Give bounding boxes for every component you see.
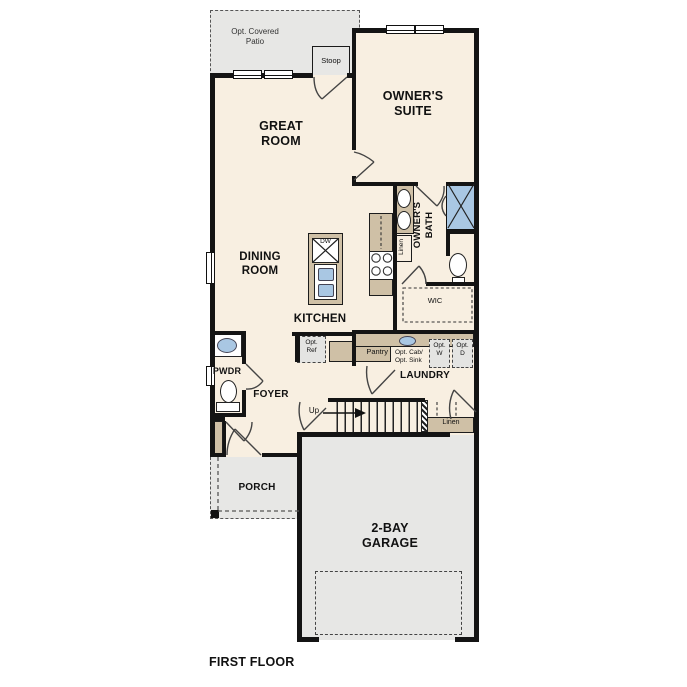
wall [446,182,479,186]
wall [297,432,450,437]
owners-suite-label: OWNER'S SUITE [373,89,453,120]
bath-toilet-bowl [449,253,467,277]
wall [292,73,313,78]
wall [352,28,356,150]
foyer-label: FOYER [247,389,295,401]
great-room-window-right [264,70,293,79]
staircase [330,402,421,432]
wall [297,435,302,642]
vanity-sink-bottom [397,211,411,230]
wall [210,331,246,335]
pwdr-toilet-tank [216,402,240,412]
cooktop [369,251,394,280]
pantry-label: Pantry [334,347,388,356]
vanity-sink-top [397,189,411,208]
wall [262,453,300,457]
wall [210,386,215,457]
garage-door-dashed-area [315,571,462,635]
wall [210,453,226,457]
wall [393,182,397,334]
stairs-linen-label: Linen [434,419,468,428]
porch-post [211,510,219,518]
laundry-opt-sink [399,336,416,346]
dining-room-window [206,252,215,284]
wall [223,421,226,454]
owners-bath-label: OWNER'S BATH [412,195,448,255]
pwdr-toilet-bowl [220,380,237,403]
kitchen-label: KITCHEN [289,312,351,326]
wall [292,332,354,336]
opt-washer-label: Opt. W [429,342,450,358]
wall [210,73,215,252]
wall [455,637,479,642]
wall [446,230,479,234]
wall [356,182,418,186]
owners-suite-window-left [386,25,415,34]
dishwasher-label: DW [313,238,338,246]
wic-label: WIC [419,296,451,305]
great-room-window-left [233,70,262,79]
wall [328,398,425,402]
garage-label: 2-BAY GARAGE [353,521,427,552]
laundry-label: LAUNDRY [387,370,463,382]
dining-room-label: DINING ROOM [221,250,299,278]
first-floor-title: FIRST FLOOR [209,655,349,670]
shower [446,182,476,230]
up-label: Up [305,406,323,416]
pwdr-sink-bowl [217,338,237,353]
wall [426,282,477,286]
porch-label: PORCH [226,482,288,494]
great-room-label: GREAT ROOM [241,119,321,150]
wall [474,28,479,642]
owners-suite-window-right [415,25,444,34]
stoop-label: Stoop [312,56,350,65]
opt-ref-label: Opt. Ref [297,339,326,355]
wall [352,28,386,33]
pwdr-label: PWDR [209,366,245,377]
opt-dryer-label: Opt. D [452,342,473,358]
wall [242,331,246,364]
bath-linen-label: Linen [398,232,406,262]
wall [297,637,319,642]
patio-label: Opt. Covered Patio [210,27,300,47]
wall [352,330,477,334]
wall [210,284,215,366]
floor-plan: Opt. Covered Patio Stoop OWNER'S SUITE G… [0,0,687,687]
island-sink-basin-bottom [318,284,334,297]
island-sink-basin-top [318,268,334,281]
